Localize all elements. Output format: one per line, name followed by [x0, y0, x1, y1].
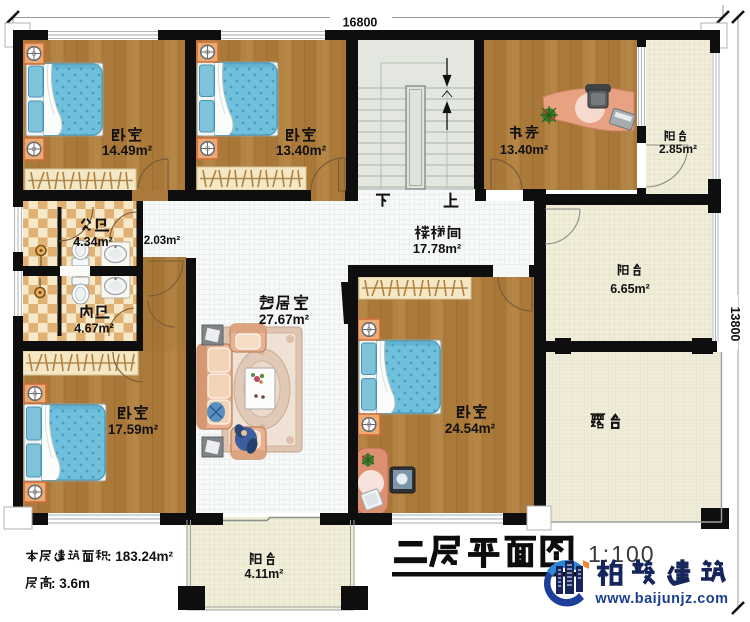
svg-text:4.67m²: 4.67m²: [74, 322, 114, 336]
svg-text:6.65m²: 6.65m²: [610, 282, 650, 296]
svg-text:13.40m²: 13.40m²: [500, 142, 549, 157]
svg-text:2.85m²: 2.85m²: [659, 142, 697, 156]
svg-text:13800: 13800: [728, 307, 742, 342]
svg-text:14.49m²: 14.49m²: [102, 143, 153, 158]
svg-text:: 3.6m: : 3.6m: [51, 576, 90, 591]
svg-text:: 183.24m²: : 183.24m²: [107, 549, 174, 564]
svg-text:17.78m²: 17.78m²: [413, 241, 462, 256]
svg-text:2.03m²: 2.03m²: [144, 235, 181, 247]
svg-text:16800: 16800: [343, 16, 378, 30]
svg-text:24.54m²: 24.54m²: [445, 421, 496, 436]
svg-text:4.34m²: 4.34m²: [73, 235, 113, 249]
svg-text:13.40m²: 13.40m²: [276, 143, 327, 158]
svg-text:17.59m²: 17.59m²: [108, 422, 159, 437]
svg-text:4.11m²: 4.11m²: [245, 567, 284, 581]
svg-text:www.baijunjz.com: www.baijunjz.com: [594, 591, 728, 607]
svg-text:27.67m²: 27.67m²: [259, 312, 310, 327]
